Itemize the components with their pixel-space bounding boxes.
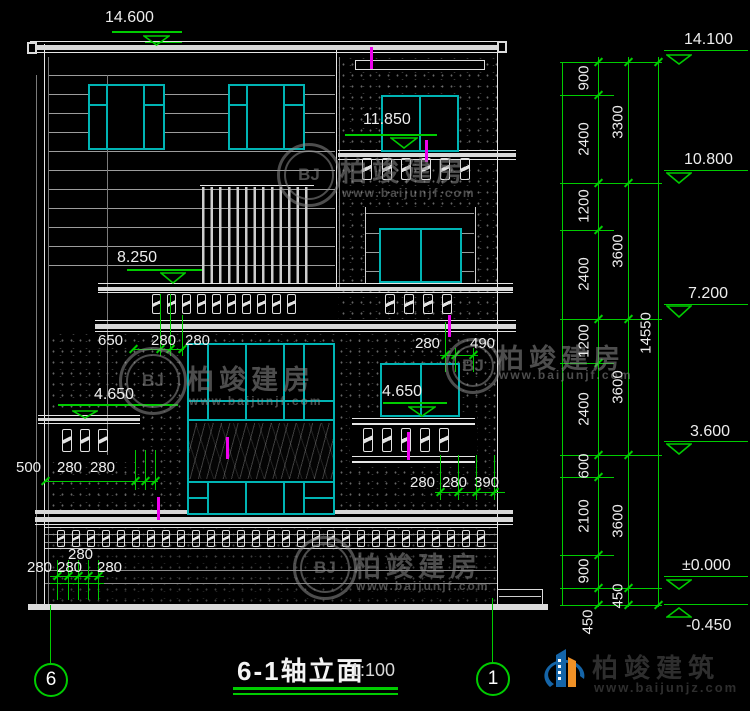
- axis-marker-magenta-1: [370, 47, 373, 69]
- entry-step: [497, 589, 543, 605]
- axis-bubble-1-label: 1: [488, 668, 499, 689]
- chain-dim: 900: [577, 558, 592, 583]
- elevation-3600: 3.600: [690, 424, 730, 440]
- ground-slab-edge: [35, 524, 513, 525]
- third-floor-slab-thick: [98, 287, 513, 291]
- elevation-triangle-icon: [666, 442, 692, 454]
- watermark-url-2: www.baijunjf.com: [189, 394, 323, 408]
- watermark-badge-2: BJ: [119, 347, 187, 415]
- dim-650: 650: [98, 333, 123, 348]
- railing-baluster: [442, 294, 452, 314]
- railing-baluster: [117, 530, 125, 547]
- dim-390: 390: [474, 475, 499, 490]
- watermark-text-2: 柏竣建房: [187, 358, 315, 397]
- chain-dim: 2100: [577, 499, 592, 532]
- railing-baluster: [385, 294, 395, 314]
- roof-slab-thick: [30, 45, 507, 50]
- dim-280: 280: [57, 560, 82, 575]
- watermark-text-1: 柏竣建房: [340, 150, 468, 189]
- elevation-0000: ±0.000: [682, 558, 731, 574]
- elevation-triangle-icon: [666, 52, 692, 63]
- railing-baluster: [167, 294, 176, 314]
- dim-280: 280: [90, 460, 115, 475]
- railing-baluster: [98, 429, 108, 452]
- chain-total: 14550: [639, 312, 654, 354]
- elevation-triangle-icon: [143, 33, 170, 44]
- axis-bubble-1: 1: [476, 662, 510, 696]
- chain-dim: 1200: [577, 189, 592, 222]
- railing-baluster: [382, 428, 392, 452]
- railing-baluster: [423, 294, 433, 314]
- railing-baluster: [227, 294, 236, 314]
- railing-baluster: [147, 530, 155, 547]
- elevation-triangle-icon: [160, 271, 186, 283]
- railing-baluster: [212, 294, 221, 314]
- dim-280: 280: [185, 333, 210, 348]
- chain-dim: 2400: [577, 122, 592, 155]
- railing-baluster: [102, 530, 110, 547]
- dim-280: 280: [57, 460, 82, 475]
- watermark-badge-1: BJ: [277, 143, 341, 207]
- railing-baluster: [162, 530, 170, 547]
- chain-dim: 900: [577, 65, 592, 90]
- porch-rail-top: [45, 527, 497, 528]
- railing-baluster: [197, 294, 206, 314]
- entry-step-line: [499, 596, 541, 597]
- railing-baluster: [72, 530, 80, 547]
- chain-dim: 3300: [611, 105, 626, 138]
- right-balcony-rail-bottom: [352, 456, 475, 457]
- chain-dim-450: 450: [581, 609, 596, 634]
- railing-baluster: [207, 530, 215, 547]
- railing-baluster: [57, 530, 65, 547]
- elevation-10800: 10.800: [684, 152, 733, 168]
- building-left-edge-inner: [48, 57, 49, 605]
- elevation-4650-right: 4.650: [382, 384, 422, 400]
- railing-baluster: [222, 530, 230, 547]
- right-balcony-rail-top2: [352, 423, 475, 425]
- roof-slab: [30, 41, 507, 42]
- chain-dim: 2400: [577, 392, 592, 425]
- ground-slab-bottom: [35, 517, 513, 522]
- cad-elevation-drawing: 6 1 BJ 柏竣建房 www.baijunjf.com BJ 柏竣建房 www…: [0, 0, 750, 711]
- axis-leader-6: [50, 605, 51, 663]
- roof-end-cap-right: [497, 41, 507, 53]
- drawing-title: 6-1轴立面: [237, 651, 365, 688]
- axis-marker-magenta-6: [226, 437, 229, 459]
- dim-280: 280: [410, 475, 435, 490]
- axis-bubble-6: 6: [34, 663, 68, 697]
- dim-280: 280: [415, 336, 440, 351]
- roof-end-cap-left: [27, 42, 37, 54]
- dim-280: 280: [27, 560, 52, 575]
- railing-baluster: [192, 530, 200, 547]
- right-balcony-rail-bottom2: [352, 461, 475, 463]
- roof-slab-bottom: [30, 52, 507, 53]
- window-top-left-2: [228, 84, 305, 150]
- railing-baluster: [242, 294, 251, 314]
- title-underline-1: [233, 687, 398, 690]
- axis-marker-magenta-5: [157, 497, 160, 520]
- watermark-url-4: www.baijunjf.com: [356, 579, 490, 593]
- inset-right-edge: [475, 207, 476, 284]
- railing-baluster: [182, 294, 191, 314]
- railing-baluster: [62, 429, 72, 452]
- elevation-14600: 14.600: [105, 10, 154, 26]
- axis-marker-magenta-3: [448, 315, 451, 337]
- dim-280: 280: [151, 333, 176, 348]
- railing-baluster: [177, 530, 185, 547]
- chain-dim: 450: [611, 583, 626, 608]
- left-balcony-slab-bottom: [38, 423, 140, 424]
- railing-baluster: [252, 530, 260, 547]
- elevation-7200: 7.200: [688, 286, 728, 302]
- elevation-triangle-icon: [390, 136, 418, 148]
- penthouse-fascia: [355, 60, 485, 70]
- watermark-url-1: www.baijunjf.com: [342, 186, 476, 200]
- elevation-triangle-icon: [666, 577, 692, 588]
- chain-dim: 2400: [577, 257, 592, 290]
- chain-dim: 3600: [611, 504, 626, 537]
- railing-baluster: [257, 294, 266, 314]
- railing-baluster: [363, 428, 373, 452]
- watermark-badge-4: BJ: [293, 536, 357, 600]
- railing-baluster: [404, 294, 414, 314]
- railing-baluster: [282, 530, 290, 547]
- axis-marker-magenta-4: [407, 432, 410, 460]
- railing-baluster: [287, 294, 296, 314]
- elevation-14100: 14.100: [684, 32, 733, 48]
- window-top-left-1: [88, 84, 165, 150]
- elevation-triangle-icon: [666, 171, 692, 183]
- second-floor-slab-thick: [95, 324, 516, 329]
- stone-band-texture: [189, 423, 333, 479]
- axis-bubble-6-label: 6: [46, 669, 57, 690]
- railing-baluster: [439, 428, 449, 452]
- chain-dim: 600: [577, 453, 592, 478]
- right-balcony-rail-top: [352, 418, 475, 419]
- grade-line: [28, 604, 548, 610]
- elevation-neg0450: -0.450: [686, 618, 731, 634]
- extension-line-outer: [36, 75, 37, 605]
- elevation-11850: 11.850: [363, 112, 411, 128]
- railing-baluster: [267, 530, 275, 547]
- window-third-floor: [379, 228, 462, 283]
- railing-baluster: [87, 530, 95, 547]
- second-floor-slab: [95, 320, 516, 321]
- third-floor-slab-bottom: [98, 292, 513, 293]
- dim-500: 500: [16, 460, 41, 475]
- drawing-scale: 1:100: [350, 660, 395, 681]
- dim-280: 280: [442, 475, 467, 490]
- elevation-triangle-icon: [72, 406, 98, 415]
- brand-url: www.baijunjz.com: [594, 680, 738, 695]
- elevation-triangle-icon: [408, 404, 436, 415]
- railing-baluster: [237, 530, 245, 547]
- elevation-triangle-icon: [666, 305, 692, 318]
- elevation-8250: 8.250: [117, 250, 157, 266]
- dim-280: 280: [97, 560, 122, 575]
- chain-dim: 3600: [611, 370, 626, 403]
- elevation-triangle-icon: [666, 605, 692, 616]
- elevation-4650-left: 4.650: [94, 387, 134, 403]
- brand-logo-icon: [540, 643, 588, 697]
- railing-baluster: [80, 429, 90, 452]
- title-underline-2: [233, 693, 398, 695]
- railing-baluster: [272, 294, 281, 314]
- railing-baluster: [132, 530, 140, 547]
- railing-baluster: [420, 428, 430, 452]
- inset-left-edge: [365, 207, 366, 284]
- dim-490: 490: [470, 336, 495, 351]
- chain-dim: 1200: [577, 324, 592, 357]
- chain-dim: 3600: [611, 234, 626, 267]
- axis-leader-1: [492, 598, 493, 662]
